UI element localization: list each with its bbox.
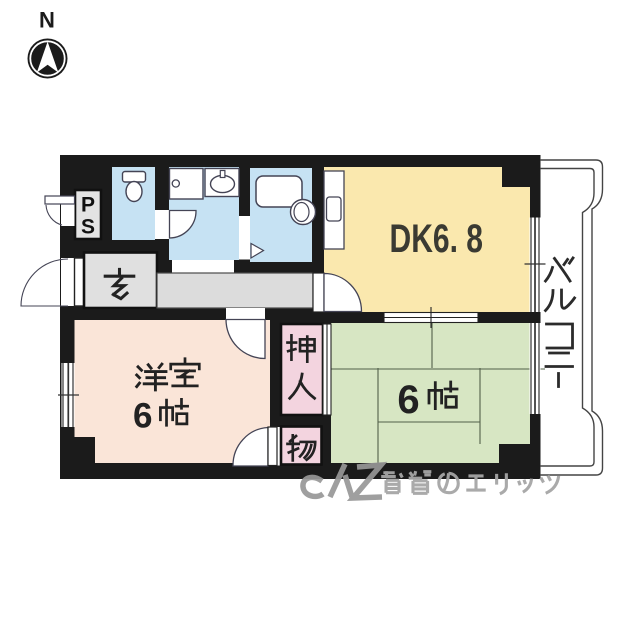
svg-text:P: P [81,194,95,217]
svg-text:S: S [81,216,95,239]
svg-text:6: 6 [397,378,419,422]
svg-text:DK6. 8: DK6. 8 [390,217,484,261]
svg-text:N: N [39,8,55,33]
svg-text:6: 6 [133,397,152,436]
